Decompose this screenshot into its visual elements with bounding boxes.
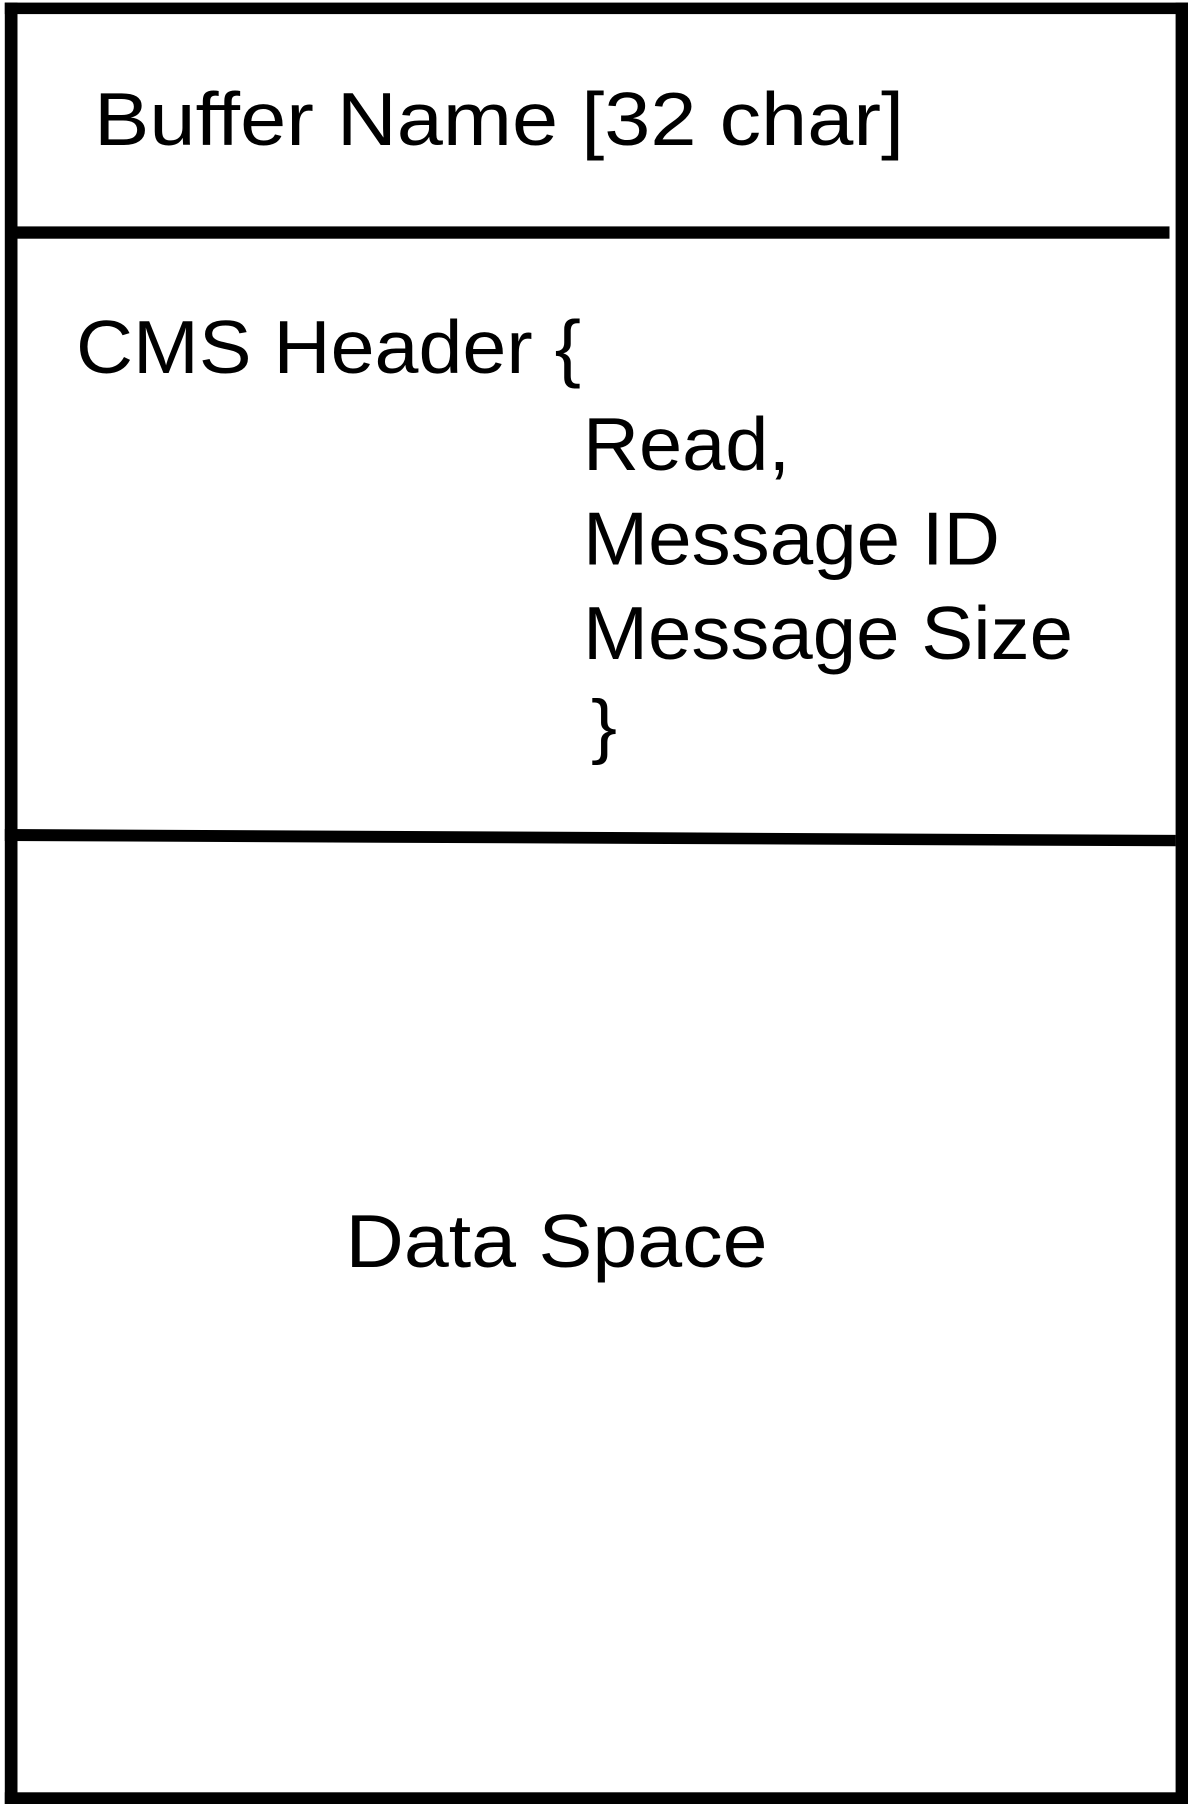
svg-text:Message ID: Message ID [583,497,1000,581]
svg-text:Read,: Read, [583,402,790,486]
svg-text:CMS Header {: CMS Header { [76,305,581,389]
svg-text:Buffer Name [32 char]: Buffer Name [32 char] [94,77,904,161]
svg-text:Data Space: Data Space [346,1199,768,1283]
svg-text:Message Size: Message Size [583,591,1073,675]
svg-text:}: } [591,687,617,766]
